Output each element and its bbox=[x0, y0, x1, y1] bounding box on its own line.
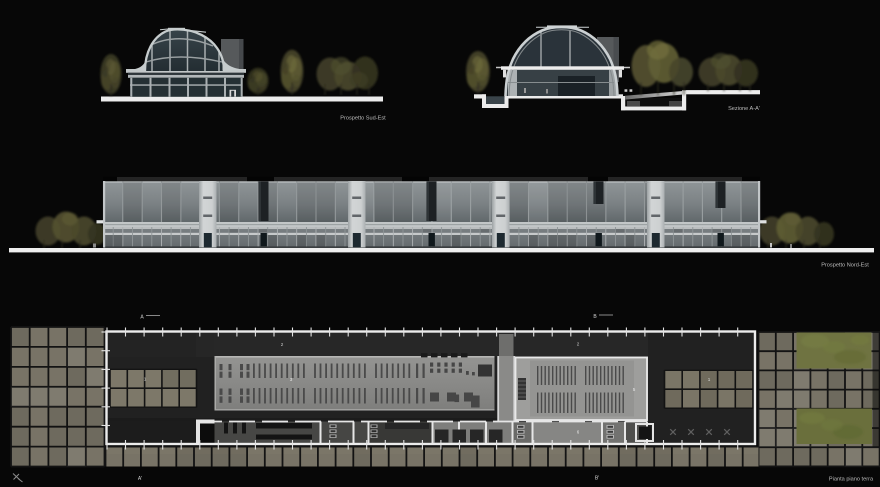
svg-text:Prospetto Nord-Est: Prospetto Nord-Est bbox=[821, 263, 869, 269]
svg-text:Prospetto Sud-Est: Prospetto Sud-Est bbox=[340, 116, 386, 122]
svg-text:A': A' bbox=[138, 476, 142, 482]
svg-text:Sezione A-A': Sezione A-A' bbox=[728, 106, 760, 112]
svg-text:1: 1 bbox=[144, 377, 147, 382]
svg-text:5: 5 bbox=[633, 387, 636, 392]
svg-text:3: 3 bbox=[290, 377, 293, 382]
svg-text:Pianta piano terra: Pianta piano terra bbox=[829, 477, 874, 483]
svg-text:1: 1 bbox=[708, 377, 711, 382]
svg-text:2: 2 bbox=[281, 342, 284, 347]
svg-text:2: 2 bbox=[577, 342, 580, 347]
svg-text:B': B' bbox=[595, 476, 599, 482]
